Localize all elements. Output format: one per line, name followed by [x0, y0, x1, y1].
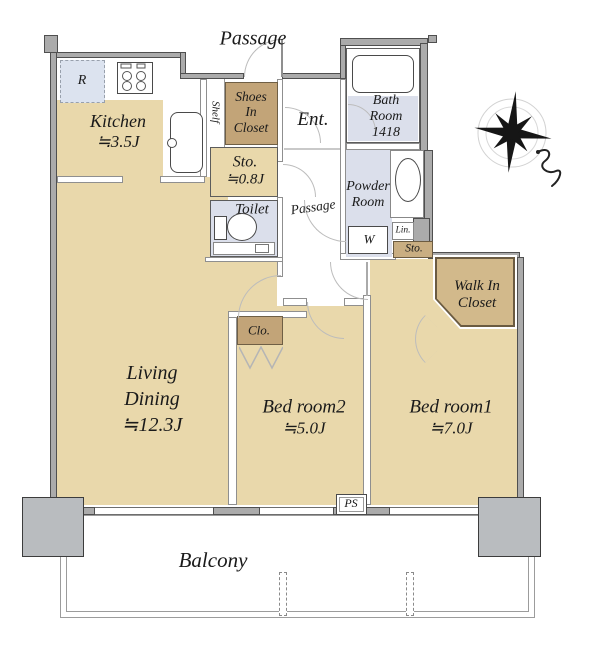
balcony-partition: [406, 572, 414, 616]
pillar: [22, 497, 84, 557]
shoes-closet-label: Shoes In Closet: [234, 89, 269, 135]
bath-line: Bath: [370, 93, 403, 109]
faucet-icon: [167, 138, 177, 148]
linen-label: Lin.: [395, 226, 410, 237]
shoes-line: Closet: [234, 120, 269, 135]
walkin-closet-label: Walk In Closet: [454, 278, 500, 312]
passage-top-label: Passage: [220, 28, 287, 51]
bedroom2-size: ≒5.0J: [262, 418, 345, 437]
balcony-partition: [279, 572, 287, 616]
storage-size: ≒0.8J: [226, 172, 264, 189]
bath-room-label: Bath Room 1418: [370, 93, 403, 141]
wall: [346, 143, 420, 150]
kitchen-size: ≒3.5J: [90, 132, 146, 151]
wall: [57, 176, 123, 183]
kitchen-name: Kitchen: [90, 111, 146, 132]
stove-icon: [117, 62, 153, 94]
wall: [44, 35, 58, 53]
washer-label: W: [364, 233, 375, 248]
balcony-outline-inner: [66, 515, 529, 612]
living-line: ≒12.3J: [122, 412, 183, 438]
wall: [363, 295, 371, 505]
toilet-counter-box: [255, 244, 269, 253]
bedroom1-door-arc: [330, 262, 368, 300]
window-living: [95, 507, 213, 515]
window-bedroom2: [260, 507, 333, 515]
toilet-door-arc: [283, 164, 316, 197]
living-line: Living: [122, 360, 183, 386]
pillar: [478, 497, 541, 557]
wall: [420, 43, 428, 153]
wall: [213, 507, 260, 515]
bath-line: 1418: [370, 125, 403, 141]
wall: [517, 257, 524, 507]
living-line: Dining: [122, 386, 183, 412]
walkin-line: Walk In: [454, 278, 500, 295]
wall: [50, 52, 57, 505]
floor-plan: Passage Kitchen ≒3.5J R Shelf Shoes In C…: [0, 0, 600, 646]
bedroom1-label: Bed room1 ≒7.0J: [409, 396, 492, 437]
entrance-step: [284, 148, 340, 150]
kitchen-label: Kitchen ≒3.5J: [90, 111, 146, 151]
powder-room-label: Powder Room: [346, 179, 390, 211]
storage-label: Sto. ≒0.8J: [226, 153, 264, 188]
powder-line: Room: [346, 195, 390, 211]
balcony-label: Balcony: [179, 549, 248, 573]
bedroom2-name: Bed room2: [262, 396, 345, 418]
closet-fold-icon: [239, 346, 283, 370]
wall: [413, 218, 430, 242]
closet-label: Clo.: [248, 324, 270, 339]
bathtub-icon: [352, 55, 414, 93]
bedroom2-label: Bed room2 ≒5.0J: [262, 396, 345, 437]
toilet-tank-icon: [214, 216, 227, 240]
wall: [160, 176, 205, 183]
wall: [340, 38, 428, 46]
wall: [282, 73, 346, 79]
wall: [228, 311, 237, 505]
basin-icon: [395, 158, 421, 202]
toilet-label: Toilet: [235, 201, 269, 218]
shoes-line: In: [234, 104, 269, 119]
storage-name: Sto.: [226, 153, 264, 171]
window-bedroom1: [390, 507, 478, 515]
bedroom1-size: ≒7.0J: [409, 418, 492, 437]
compass-icon: [452, 78, 582, 198]
wall: [283, 298, 307, 306]
walkin-line: Closet: [454, 295, 500, 312]
bedroom1-name: Bed room1: [409, 396, 492, 418]
wall: [50, 52, 186, 58]
living-dining-label: Living Dining ≒12.3J: [122, 360, 183, 438]
shoes-line: Shoes: [234, 89, 269, 104]
pipe-space-label: PS: [344, 497, 357, 511]
entrance-label: Ent.: [297, 109, 328, 131]
bedroom1-door-leaf: [366, 262, 368, 296]
powder-line: Powder: [346, 179, 390, 195]
storage-small-label: Sto.: [405, 242, 423, 255]
bath-line: Room: [370, 109, 403, 125]
living-dining-floor: [57, 177, 228, 505]
shelf-label: Shelf: [209, 101, 222, 123]
wall: [205, 257, 283, 262]
refrigerator-label: R: [78, 73, 87, 89]
wall: [428, 35, 437, 43]
